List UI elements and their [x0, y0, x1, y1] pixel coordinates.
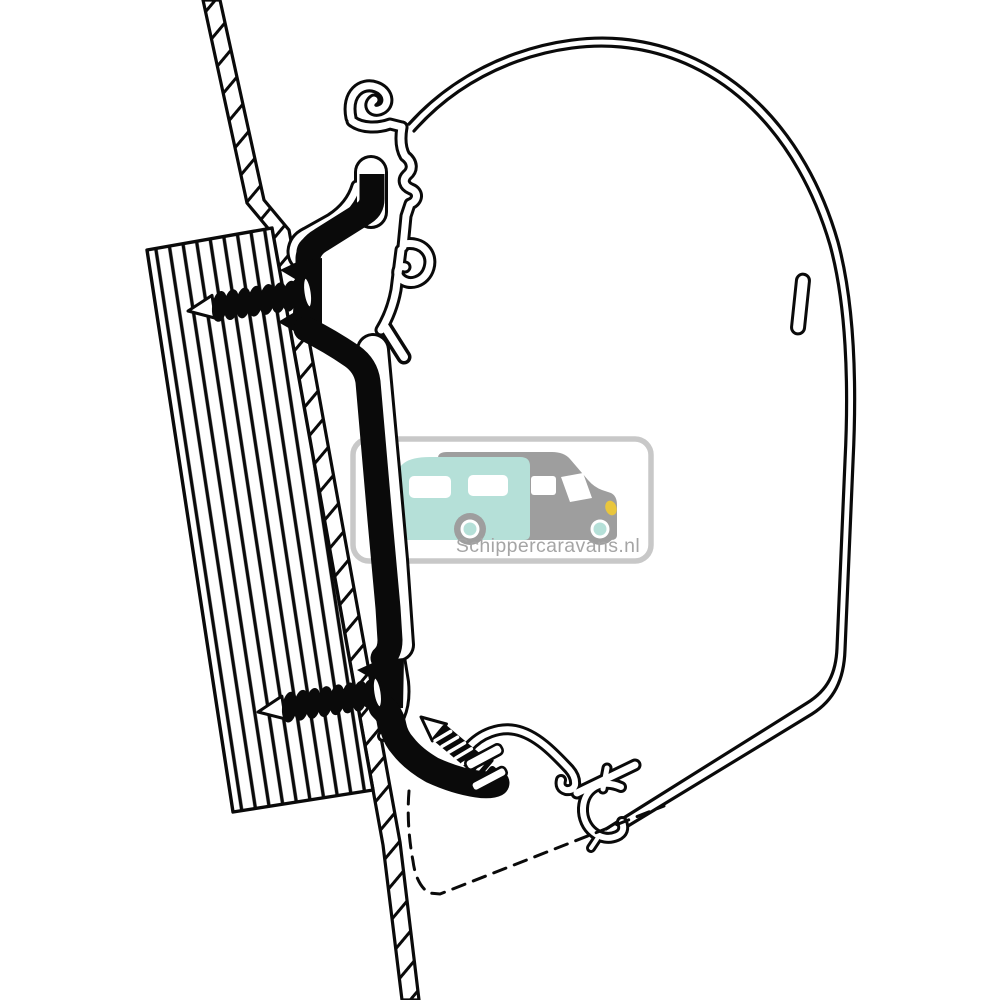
- hidden-part-dashed-outline: [408, 791, 664, 894]
- caravan-window-front: [409, 476, 451, 498]
- awning-adapter-cross-section-diagram: Schippercaravans.nl: [0, 0, 1000, 1000]
- watermark-text: Schippercaravans.nl: [456, 535, 640, 557]
- diagram-canvas: Schippercaravans.nl: [0, 0, 1000, 1000]
- motorhome-side-window: [531, 476, 556, 495]
- caravan-window-rear: [468, 475, 508, 496]
- case-seam-detail: [791, 274, 810, 335]
